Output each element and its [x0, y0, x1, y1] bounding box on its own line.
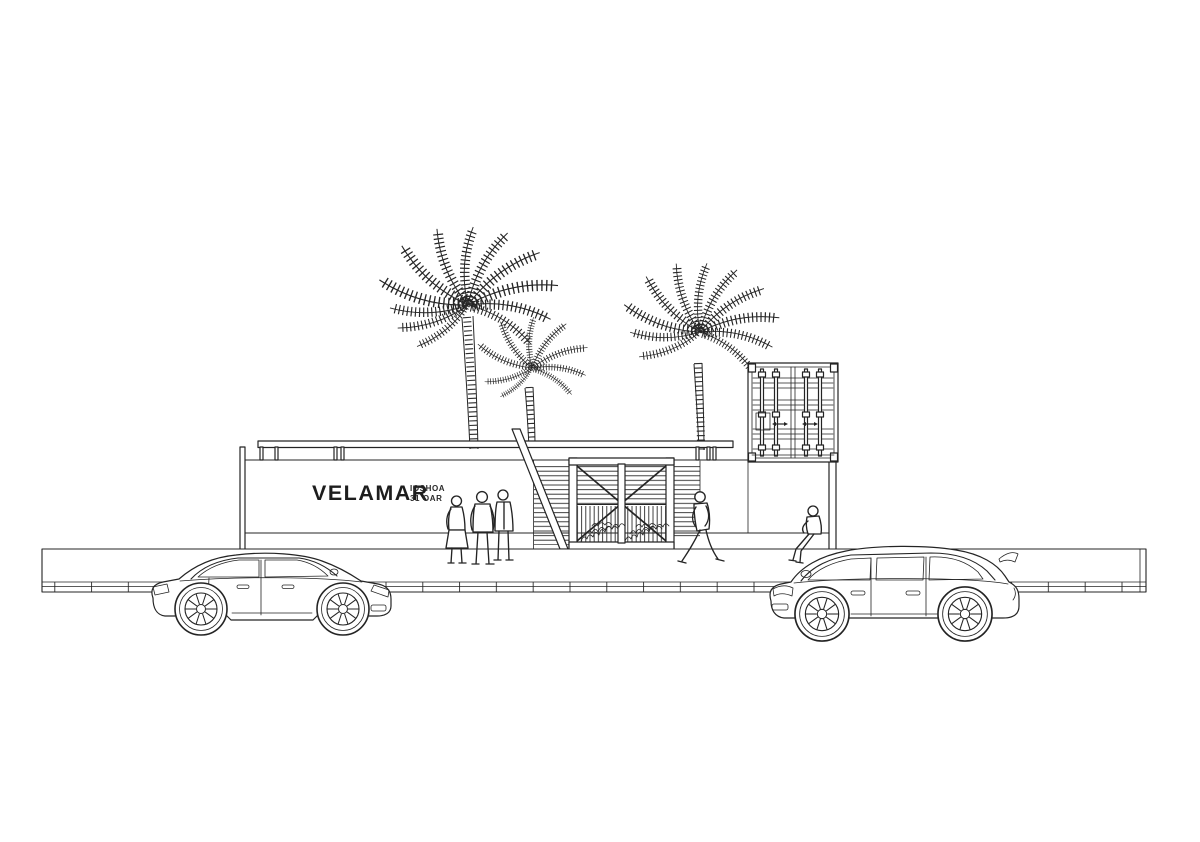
building: VELAMAR IOSHOA 31 OAR [240, 363, 838, 550]
gate-mullion [618, 464, 625, 543]
elevation-drawing: VELAMAR IOSHOA 31 OAR [0, 0, 1200, 842]
wall-right-post [829, 461, 836, 550]
sign-sub-line1: IOSHOA [410, 484, 445, 493]
drawing-canvas: VELAMAR IOSHOA 31 OAR [0, 0, 1200, 842]
suv-front-wheel [795, 587, 849, 641]
gate-post-right [666, 458, 674, 550]
sign-sub-line2: 31 OAR [410, 494, 443, 503]
palm-tree-left-small [477, 317, 589, 447]
sedan-rear-wheel [175, 583, 227, 635]
gate-post-left [569, 458, 577, 550]
shipping-container [748, 363, 838, 462]
palm-tree-left-large [378, 227, 559, 449]
velamar-sign: VELAMAR IOSHOA 31 OAR [312, 481, 445, 505]
roof-slab [258, 441, 733, 448]
suv-rear-wheel [938, 587, 992, 641]
sedan-front-wheel [317, 583, 369, 635]
wall-left-post [240, 447, 245, 550]
entrance-gate [569, 458, 700, 550]
